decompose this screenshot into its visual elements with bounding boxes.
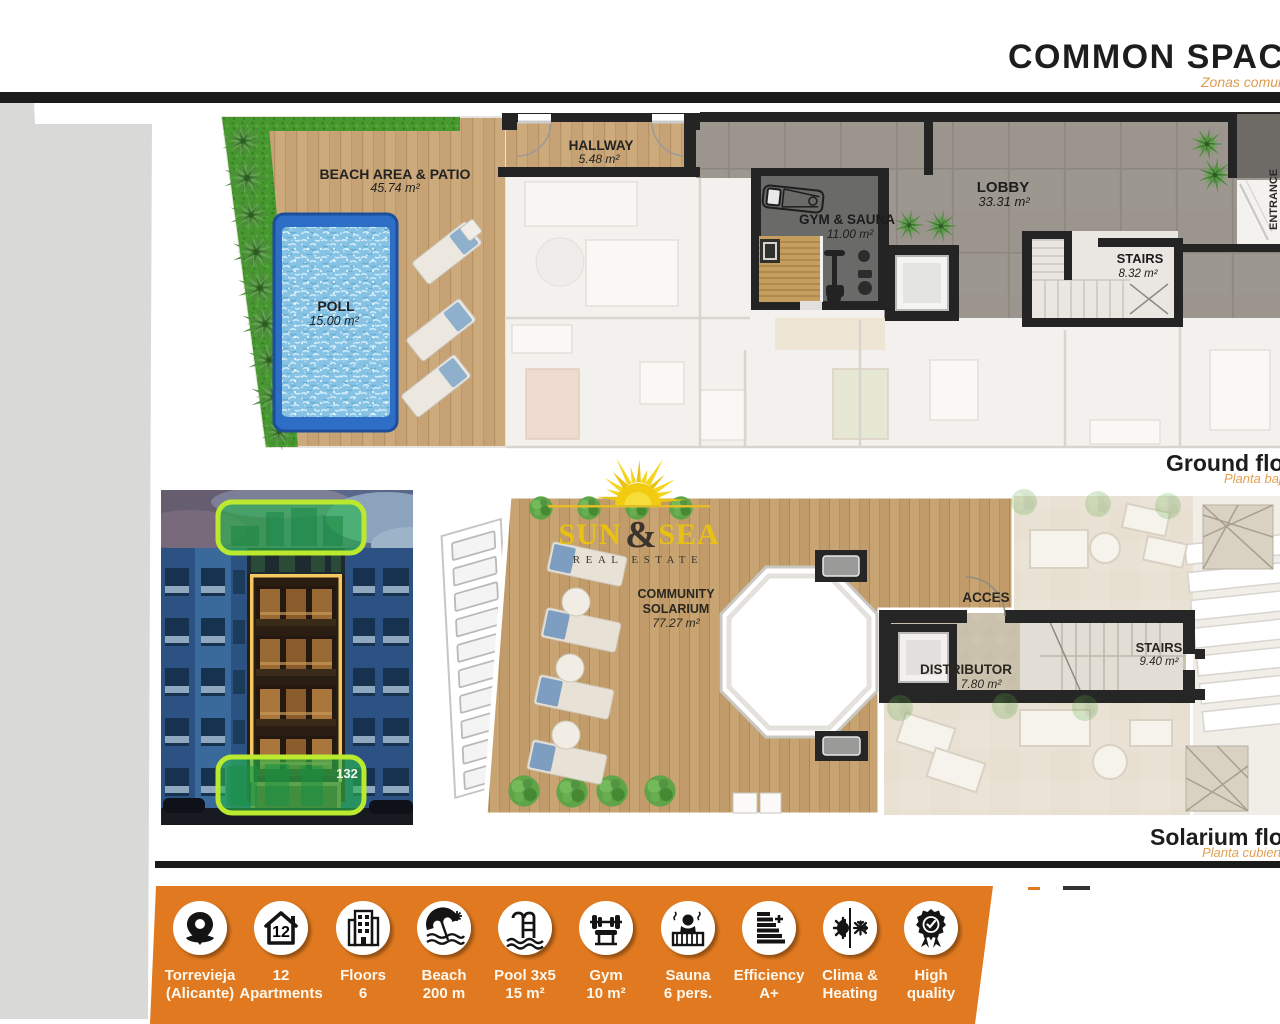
svg-text:9.40 m²: 9.40 m² (1140, 656, 1180, 668)
svg-text:132: 132 (336, 766, 358, 781)
svg-text:DISTRIBUTOR: DISTRIBUTOR (920, 662, 1012, 677)
svg-text:Torrevieja: Torrevieja (165, 967, 236, 984)
svg-text:SOLARIUM: SOLARIUM (643, 602, 710, 616)
svg-text:A+: A+ (759, 985, 779, 1002)
svg-text:45.74 m²: 45.74 m² (370, 181, 420, 195)
svg-text:STAIRS: STAIRS (1136, 640, 1183, 655)
svg-text:77.27 m²: 77.27 m² (652, 616, 700, 630)
svg-text:Apartments: Apartments (239, 985, 322, 1002)
svg-text:POLL: POLL (317, 298, 355, 314)
svg-text:15.00 m²: 15.00 m² (309, 314, 359, 328)
svg-text:Efficiency: Efficiency (734, 967, 806, 984)
svg-text:Pool 3x5: Pool 3x5 (494, 967, 556, 984)
svg-text:5.48 m²: 5.48 m² (579, 152, 621, 166)
svg-text:10 m²: 10 m² (586, 985, 625, 1002)
svg-text:Gym: Gym (589, 967, 622, 984)
svg-text:12: 12 (273, 967, 290, 984)
svg-text:Floors: Floors (340, 967, 386, 984)
svg-text:STAIRS: STAIRS (1117, 251, 1164, 266)
svg-text:ACCES: ACCES (962, 590, 1009, 605)
svg-text:33.31 m²: 33.31 m² (978, 194, 1030, 209)
svg-text:HALLWAY: HALLWAY (569, 138, 634, 153)
svg-text:High: High (914, 967, 947, 984)
svg-text:6: 6 (359, 985, 367, 1002)
svg-text:REAL ESTATE: REAL ESTATE (573, 554, 703, 566)
svg-text:15 m²: 15 m² (505, 985, 544, 1002)
svg-text:quality: quality (907, 985, 956, 1002)
svg-text:7.80 m²: 7.80 m² (961, 677, 1003, 691)
svg-text:GYM & SAUNA: GYM & SAUNA (799, 212, 895, 227)
svg-text:6 pers.: 6 pers. (664, 985, 712, 1002)
svg-text:SUN: SUN (558, 518, 621, 551)
svg-text:200 m: 200 m (423, 985, 466, 1002)
svg-text:(Alicante): (Alicante) (166, 985, 234, 1002)
svg-text:8.32 m²: 8.32 m² (1119, 268, 1159, 280)
svg-text:BEACH AREA & PATIO: BEACH AREA & PATIO (320, 166, 471, 182)
svg-text:&: & (625, 514, 657, 556)
svg-text:Clima &: Clima & (822, 967, 878, 984)
svg-text:SEA: SEA (658, 518, 719, 551)
svg-text:Beach: Beach (421, 967, 466, 984)
svg-text:COMMUNITY: COMMUNITY (637, 587, 715, 601)
svg-text:ENTRANCE: ENTRANCE (1268, 169, 1280, 230)
svg-text:12: 12 (272, 924, 290, 941)
svg-text:11.00 m²: 11.00 m² (827, 227, 874, 241)
svg-text:Heating: Heating (822, 985, 877, 1002)
svg-text:Sauna: Sauna (665, 967, 711, 984)
